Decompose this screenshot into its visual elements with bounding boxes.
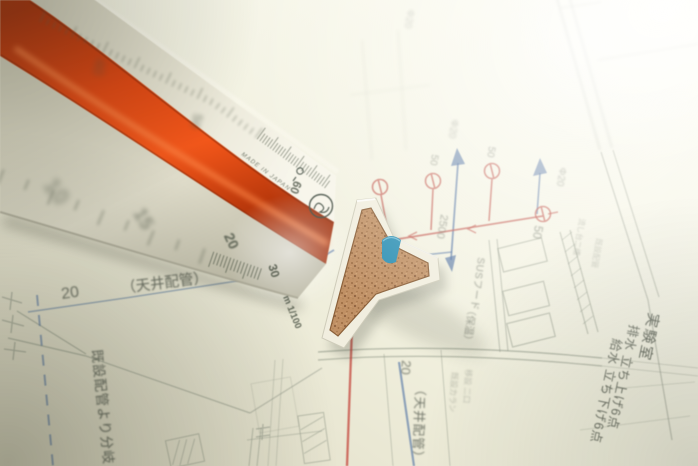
scene-svg: 20（天井配管）既設配管より分岐実験室排水 立ち上げ6点給水 立ち下げ6点（天井… — [0, 0, 698, 466]
photo-scale-ruler-on-blueprint: 20（天井配管）既設配管より分岐実験室排水 立ち上げ6点給水 立ち下げ6点（天井… — [0, 0, 698, 466]
vignette-bottom-right — [0, 0, 698, 466]
